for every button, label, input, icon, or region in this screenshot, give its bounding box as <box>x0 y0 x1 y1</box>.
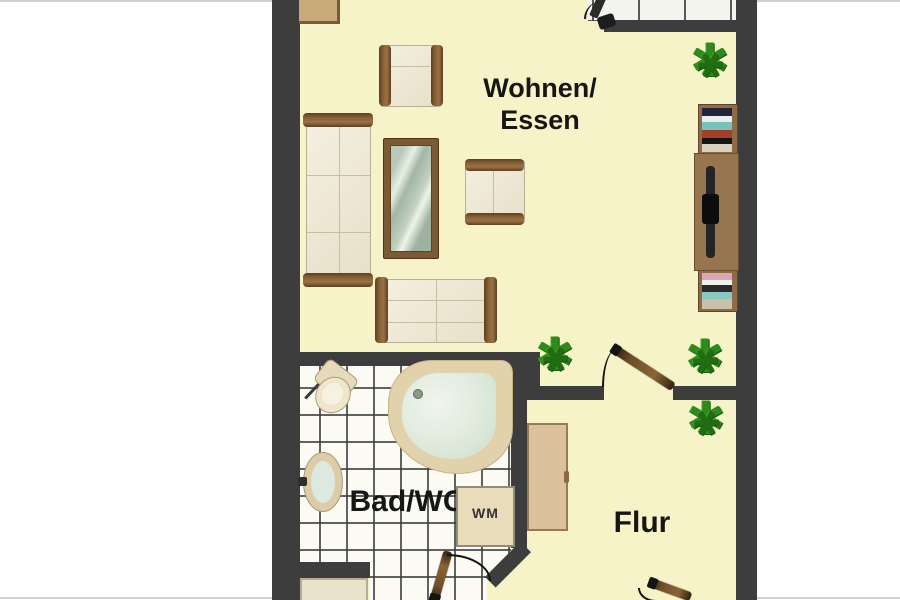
armchair-armrest <box>465 213 524 225</box>
wardrobe-icon <box>527 423 568 531</box>
washing-machine-label: WM <box>458 488 513 522</box>
sink-basin <box>311 461 335 503</box>
wall-bath-bottom <box>300 562 370 578</box>
armchair-top-icon <box>380 45 442 107</box>
room-label-hall: Flur <box>582 505 702 541</box>
sofa-body <box>306 119 371 283</box>
sofa-back-line <box>339 120 340 282</box>
exterior-wall-left <box>272 0 300 600</box>
plant-icon: ✱✱ <box>532 337 578 383</box>
washing-machine-icon: WM <box>456 486 515 547</box>
armchair-armrest <box>379 45 391 106</box>
sofa-center-line <box>436 280 437 342</box>
sofa-cushion-line <box>307 232 370 233</box>
bathtub-water <box>402 373 496 459</box>
sofa-armrest <box>375 277 388 343</box>
toilet-bowl <box>318 379 348 409</box>
table-glass-top <box>390 145 432 252</box>
books-icon <box>702 273 732 309</box>
room-label-living-line2: Essen <box>470 104 610 136</box>
exterior-wall-right <box>736 0 757 600</box>
sofa-body <box>381 279 493 343</box>
sofa-bottom-icon <box>375 277 497 343</box>
sofa-armrest <box>303 273 373 287</box>
wardrobe-handle <box>564 471 569 483</box>
sideboard-icon <box>299 0 340 24</box>
sink-tap-icon <box>298 477 307 486</box>
sofa-cushion-line <box>307 175 370 176</box>
tv-screen <box>702 194 719 224</box>
armchair-armrest <box>465 159 524 171</box>
books-icon <box>702 108 732 152</box>
room-label-living-line1: Wohnen/ <box>470 72 610 104</box>
counter-icon <box>300 578 368 600</box>
sink-icon <box>303 452 343 512</box>
sofa-left-icon <box>303 113 373 287</box>
sofa-cushion-line <box>382 322 492 323</box>
plant-icon: ✱✱ <box>682 339 728 385</box>
plant-icon: ✱✱ <box>687 43 733 89</box>
floor-plan: Wohnen/ Essen Bad/WC Flur WM ✱✱ ✱✱ ✱✱ ✱✱ <box>0 0 900 600</box>
armchair-armrest <box>431 45 443 106</box>
wall-hall-top-left <box>511 386 604 400</box>
shelf-tv-board <box>694 153 739 271</box>
armchair-cushion-line <box>493 171 494 213</box>
armchair-cushion-line <box>391 66 430 67</box>
room-label-living: Wohnen/ Essen <box>470 72 610 137</box>
table-icon <box>383 138 439 259</box>
sofa-armrest <box>303 113 373 127</box>
balcony-wall <box>604 20 736 32</box>
armchair-right-icon <box>465 160 525 224</box>
sofa-armrest <box>484 277 497 343</box>
bathtub-drain <box>413 389 423 399</box>
door-leaf-tip <box>428 592 441 600</box>
sofa-back-line <box>382 300 492 301</box>
plant-icon: ✱✱ <box>683 401 729 447</box>
shelf-unit-icon <box>698 104 738 312</box>
